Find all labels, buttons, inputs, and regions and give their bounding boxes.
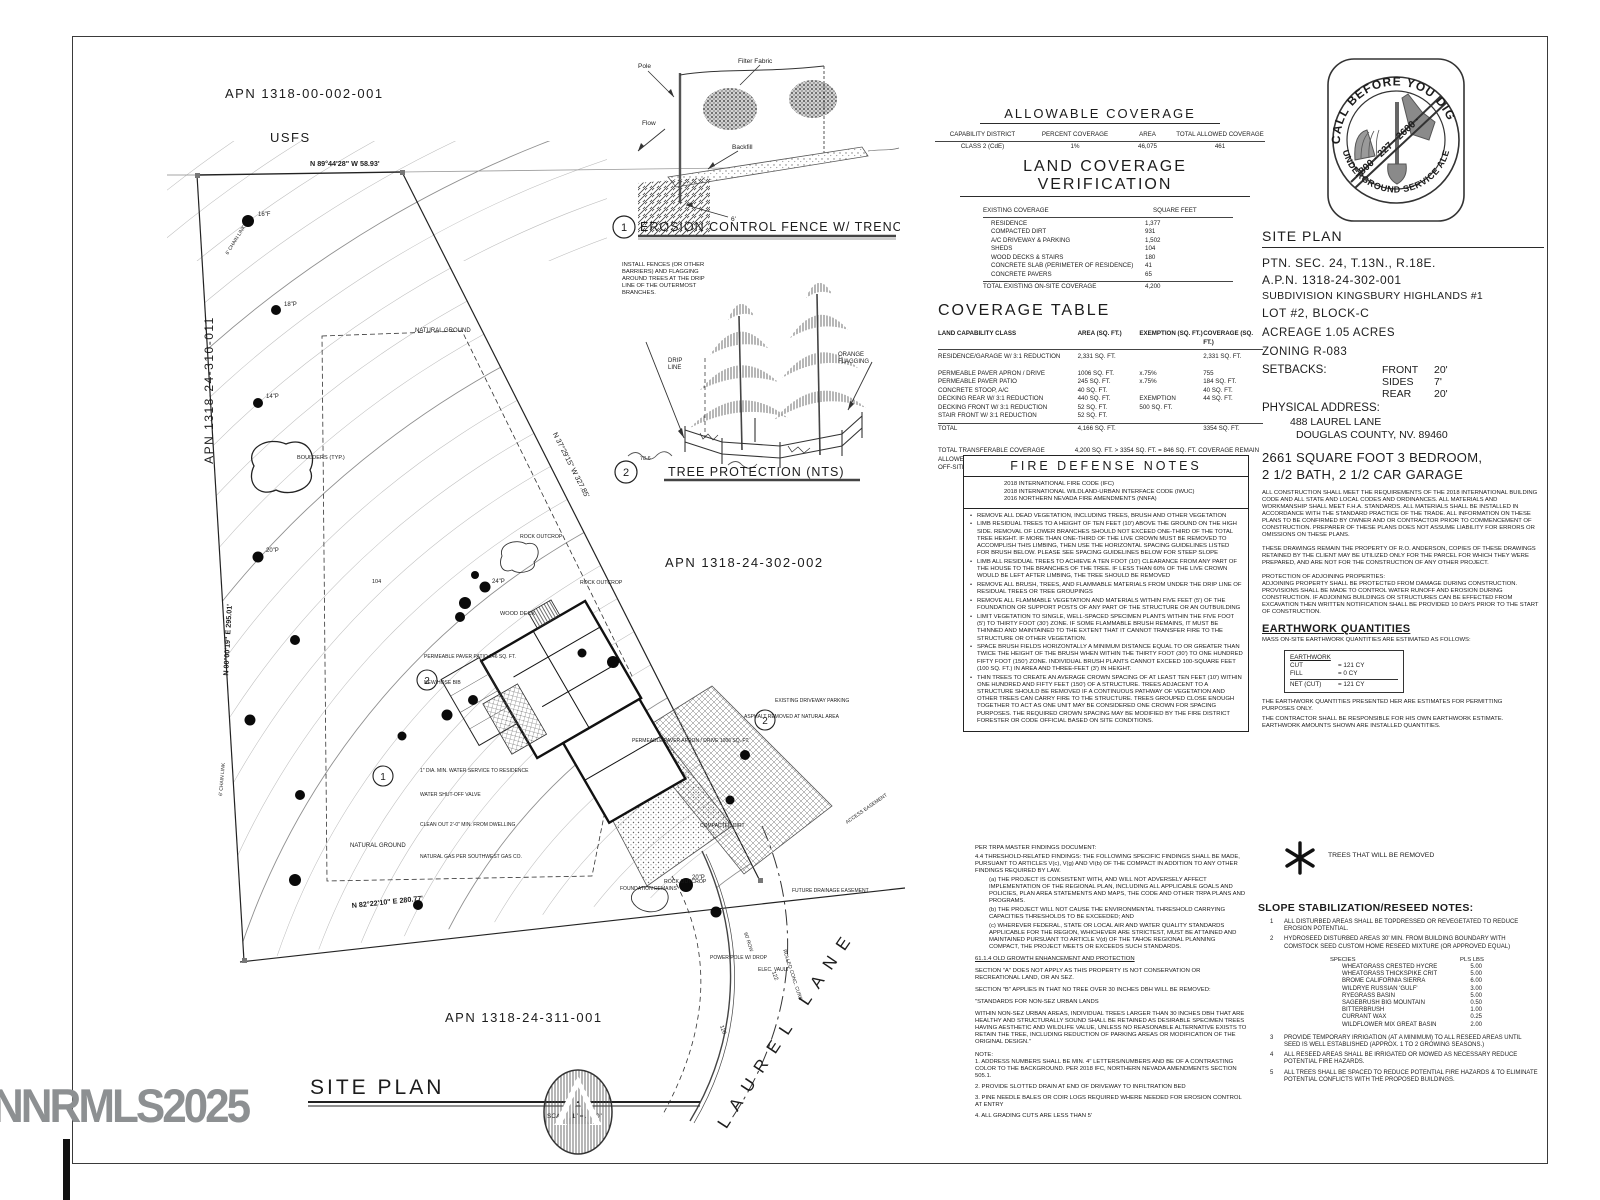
land-row-value: 1,377 (1145, 220, 1160, 229)
coverage-row-class: DECKING FRONT W/ 3:1 REDUCTION (938, 404, 1078, 413)
scanned-site-plan-sheet: { "watermark": "NNRMLS2025", "site": { "… (0, 0, 1600, 1200)
usfs-label: USFS (270, 130, 311, 145)
coverage-table: COVERAGE TABLE LAND CAPABILITY CLASS ARE… (938, 302, 1263, 473)
scan-edge-artifact (63, 1139, 70, 1200)
drip-line-label: DRIP LINE (668, 358, 694, 371)
coverage-row-area: 52 SQ. FT. (1078, 404, 1140, 413)
land-row-label: CONCRETE PAVERS (991, 271, 1145, 280)
filter-fabric-blob (789, 80, 837, 118)
backfill-label: Backfill (732, 144, 753, 151)
species-lbs: 5.00 (1460, 971, 1482, 978)
adjoining-para: ADJOINING PROPERTY SHALL BE PROTECTED FR… (1262, 581, 1540, 616)
pole-label: Pole (638, 63, 651, 70)
building-desc-2: 2 1/2 BATH, 2 1/2 CAR GARAGE (1262, 467, 1546, 482)
allowable-coverage-title: ALLOWABLE COVERAGE (980, 106, 1220, 124)
total-area: 4,166 SQ. FT. (1078, 425, 1204, 434)
title-block-column: SITE PLAN PTN. SEC. 24, T.13N., R.18E. A… (1262, 228, 1546, 730)
rock-outcrop-label: ROCK OUTCROP (580, 580, 623, 586)
mls-watermark: NNRMLS2025 (0, 1080, 248, 1134)
fire-defense-bullet: SPACE BRUSH FIELDS HORIZONTALLY A MINIMU… (970, 644, 1243, 673)
coverage-row-class: PERMEABLE PAVER PATIO (938, 378, 1078, 387)
coverage-row-exemption: EXEMPTION (1139, 395, 1203, 404)
coverage-row-coverage: 755 (1203, 370, 1263, 379)
land-row-value: 180 (1145, 254, 1155, 263)
species-name: WHEATGRASS THICKSPIKE CRIT (1342, 971, 1460, 978)
adjoining-heading: PROTECTION OF ADJOINING PROPERTIES: (1262, 574, 1540, 581)
access-easement-label: ACCESS EASEMENT (845, 792, 889, 825)
svg-text:EROSION CONTROL FENCE W/ TRENC: EROSION CONTROL FENCE W/ TRENCH (640, 220, 900, 234)
removed-tree-symbol (1282, 840, 1318, 876)
species-lbs: 5.00 (1460, 993, 1482, 1000)
apn-label-north: APN 1318-00-002-001 (225, 86, 384, 101)
cell: 46,075 (1120, 143, 1175, 152)
earthwork-title: EARTHWORK QUANTITIES (1262, 623, 1546, 635)
setback-front-value: 20' (1434, 364, 1448, 376)
sheet-title: SITE PLAN (310, 1076, 444, 1099)
fire-code-ref: 2018 INTERNATIONAL WILDLAND-URBAN INTERF… (1004, 489, 1248, 497)
fire-defense-bullet: LIMIT VEGETATION TO SINGLE, WELL-SPACED … (970, 614, 1243, 643)
fire-defense-bullet: LIMB ALL RESIDUAL TREES TO ACHIEVE A TEN… (970, 559, 1243, 581)
col-header: EXEMPTION (SQ. FT.) (1139, 330, 1203, 347)
zoning-line: ZONING R-083 (1262, 346, 1546, 358)
species-name: WHEATGRASS CRESTED HYCRE (1342, 964, 1460, 971)
species-header: SPECIES (1330, 957, 1460, 964)
drainage-easement-label: FUTURE DRAINAGE EASEMENT (792, 888, 869, 894)
chain-link-label: 6' CHAIN LINK (218, 762, 227, 796)
cell: 461 (1175, 143, 1265, 152)
species-lbs: 1.00 (1460, 1007, 1482, 1014)
paver-patio-label: PERMEABLE PAVER PATIO 246 SQ. FT. (424, 654, 516, 660)
setback-sides: SIDES (1382, 376, 1434, 388)
col-header: AREA (SQ. FT.) (1078, 330, 1140, 347)
earthwork-note-1: THE EARTHWORK QUANTITIES PRESENTED HER A… (1262, 699, 1522, 713)
reseed-note-3: PROVIDE TEMPORARY IRRIGATION (AT A MINIM… (1284, 1035, 1538, 1049)
wood-deck-label: WOOD DECK (500, 611, 535, 617)
setback-rear-value: 20' (1434, 388, 1448, 400)
col-header: LAND CAPABILITY CLASS (938, 330, 1078, 347)
boulders-label: BOULDERS (TYP.) (297, 455, 345, 461)
acreage-line: ACREAGE 1.05 ACRES (1262, 327, 1546, 339)
land-coverage-title: LAND COVERAGE VERIFICATION (960, 158, 1250, 197)
flow-label: Flow (642, 120, 656, 127)
cut-label: CUT (1290, 662, 1338, 670)
reseed-note-5: ALL TREES SHALL BE SPACED TO REDUCE POTE… (1284, 1070, 1538, 1084)
earthwork-box-header: EARTHWORK (1290, 654, 1398, 662)
address-line-2: DOUGLAS COUNTY, NV. 89460 (1262, 429, 1546, 441)
total-value: 4,200 (1145, 283, 1225, 292)
coverage-row-coverage (1203, 412, 1263, 421)
compacted-dirt-label: COMPACTED DIRT (700, 823, 745, 829)
erosion-fence-detail: Pole Filter Fabric Flow Backfill 6' 1 ER… (610, 55, 900, 245)
curb-label: ROLLED CONC. CURB (781, 949, 803, 1002)
coverage-row-coverage (1203, 404, 1263, 413)
coverage-row-class: RESIDENCE/GARAGE W/ 3:1 REDUCTION (938, 353, 1078, 362)
species-lbs: 6.00 (1460, 978, 1482, 985)
coverage-row-coverage: 2,331 SQ. FT. (1203, 353, 1263, 362)
paver-drive-label: PERMEABLE PAVER APRON / DRIVE 1006 SQ. F… (632, 738, 749, 744)
general-notes-para-1: ALL CONSTRUCTION SHALL MEET THE REQUIREM… (1262, 490, 1540, 539)
fire-defense-bullet: LIMB RESIDUAL TREES TO A HEIGHT OF TEN F… (970, 521, 1243, 557)
existing-drive-label: EXISTING DRIVEWAY PARKING (775, 698, 849, 704)
coverage-row-area: 245 SQ. FT. (1078, 378, 1140, 387)
land-row-label: RESIDENCE (991, 220, 1145, 229)
fill-label: FILL (1290, 670, 1338, 678)
setbacks-label: SETBACKS: (1262, 364, 1382, 400)
earthwork-note-2: THE CONTRACTOR SHALL BE RESPONSIBLE FOR … (1262, 716, 1522, 730)
tree-tag: 18"P (284, 302, 297, 308)
trpa-44: 4.4 THRESHOLD-RELATED FINDINGS: THE FOLL… (975, 854, 1247, 875)
right-header: SITE PLAN (1262, 228, 1544, 248)
subdivision-line: SUBDIVISION KINGSBURY HIGHLANDS #1 (1262, 290, 1546, 302)
apn-line: A.P.N. 1318-24-302-001 (1262, 273, 1546, 287)
col-header: CAPABILITY DISTRICT (935, 131, 1030, 140)
reseed-note-1: ALL DISTURBED AREAS SHALL BE TOPDRESSED … (1284, 919, 1538, 933)
fill-value: = 0 CY (1338, 670, 1357, 678)
species-table: SPECIES PLS LBS WHEATGRASS CRESTED HYCRE… (1330, 957, 1505, 1029)
coverage-row-class: DECKING REAR W/ 3:1 REDUCTION (938, 395, 1078, 404)
apn-label-center: APN 1318-24-302-002 (665, 555, 824, 570)
sheet-title-block: SITE PLAN SCALE: 1" = 20'-0" (308, 1070, 700, 1154)
natural-ground-label: NATURAL GROUND (350, 843, 406, 849)
contour-label: 104 (372, 579, 381, 585)
old-growth-heading: 61.1.4 OLD GROWTH ENHANCEMENT AND PROTEC… (975, 956, 1247, 963)
coverage-row-exemption: x.75% (1139, 370, 1203, 379)
species-name: WILDRYE RUSSIAN 'GULF' (1342, 986, 1460, 993)
lot-line: LOT #2, BLOCK-C (1262, 306, 1546, 320)
total-coverage: 3354 SQ. FT. (1203, 425, 1263, 434)
section-a: SECTION "A" DOES NOT APPLY AS THIS PROPE… (975, 968, 1247, 982)
land-row-value: 41 (1145, 262, 1152, 271)
tree-tag: 16"F (258, 212, 271, 218)
coverage-row-class: PERMEABLE PAVER APRON / DRIVE (938, 370, 1078, 379)
item-number: 2 (1270, 936, 1284, 950)
fire-defense-bullet: REMOVE ALL BRUSH, TREES, AND FLAMMABLE M… (970, 582, 1243, 596)
fire-code-ref: 2016 NORTHERN NEVADA FIRE AMENDMENTS (NN… (1004, 496, 1248, 504)
cut-value: = 121 CY (1338, 662, 1364, 670)
foundation-label: FOUNDATION REMAINS (620, 886, 678, 892)
fire-defense-title: FIRE DEFENSE NOTES (964, 456, 1248, 477)
species-lbs: 3.00 (1460, 986, 1482, 993)
cell: CLASS 2 (CdE) (935, 143, 1030, 152)
net-label: NET (CUT) (1290, 681, 1338, 689)
item-number: 1 (1270, 919, 1284, 933)
chain-link-label: 6' CHAIN LINK (225, 224, 248, 256)
item-number: 5 (1270, 1070, 1284, 1084)
coverage-row-area: 1006 SQ. FT. (1078, 370, 1140, 379)
coverage-row-exemption (1139, 412, 1203, 421)
firm-logo (544, 1070, 612, 1154)
tree-tag: 20"P (266, 548, 279, 554)
setback-rear: REAR (1382, 388, 1434, 400)
note-4: 4. ALL GRADING CUTS ARE LESS THAN 5' (975, 1113, 1247, 1120)
reseed-notes: SLOPE STABILIZATION/RESEED NOTES: 1ALL D… (1258, 902, 1550, 1087)
total-label: TOTAL EXISTING ON-SITE COVERAGE (983, 283, 1145, 292)
physical-address-label: PHYSICAL ADDRESS: (1262, 402, 1546, 414)
col-header: SQUARE FEET (1153, 207, 1233, 216)
col-header: TOTAL ALLOWED COVERAGE (1175, 131, 1265, 140)
trpa-c: (c) WHEREVER FEDERAL, STATE OR LOCAL AIR… (975, 923, 1247, 951)
species-name: BROME CALIFORNIA SIERRA (1342, 978, 1460, 985)
coverage-row-exemption: x.75% (1139, 378, 1203, 387)
land-coverage-table: LAND COVERAGE VERIFICATION EXISTING COVE… (955, 158, 1255, 292)
note-3: 3. PINE NEEDLE BALES OR COIR LOGS REQUIR… (975, 1095, 1247, 1109)
species-name: BITTERBRUSH (1342, 1007, 1460, 1014)
asphalt-label: ASPHALT REMOVED AT NATURAL AREA (744, 714, 840, 720)
species-lbs: 0.50 (1460, 1000, 1482, 1007)
bearing-east: N 37°29'15" W 327.85' (551, 431, 592, 500)
call-before-you-dig-logo: CALL BEFORE YOU DIG UNDERGROUND SERVICE … (1325, 56, 1467, 224)
protection-fence (685, 412, 862, 468)
ownership-para: THESE DRAWINGS REMAIN THE PROPERTY OF R.… (1262, 546, 1540, 567)
coverage-row-class: STAIR FRONT W/ 3:1 REDUCTION (938, 412, 1078, 421)
note-heading: NOTE: (975, 1052, 1247, 1059)
item-number: 3 (1270, 1035, 1284, 1049)
land-row-value: 104 (1145, 245, 1155, 254)
removed-trees-legend-label: TREES THAT WILL BE REMOVED (1328, 852, 1434, 859)
species-lbs: 2.00 (1460, 1022, 1482, 1029)
land-row-label: COMPACTED DIRT (991, 228, 1145, 237)
filter-fabric-blob (703, 88, 757, 130)
ptn-line: PTN. SEC. 24, T.13N., R.18E. (1262, 256, 1546, 270)
gas-label: NATURAL GAS PER SOUTHWEST GAS CO. (420, 854, 522, 860)
fire-defense-bullet: REMOVE ALL DEAD VEGETATION, INCLUDING TR… (970, 513, 1243, 520)
cleanout-label: CLEAN OUT 2'-0" MIN. FROM DWELLING (420, 822, 516, 828)
species-name: CURRANT WAX (1342, 1014, 1460, 1021)
svg-text:1: 1 (621, 222, 627, 234)
total-label: TOTAL (938, 425, 1078, 434)
coverage-row-area: 440 SQ. FT. (1078, 395, 1140, 404)
tree-protection-note: INSTALL FENCES (OR OTHER BARRIERS) AND F… (622, 262, 710, 297)
trpa-findings: PER TRPA MASTER FINDINGS DOCUMENT: 4.4 T… (975, 845, 1247, 1120)
land-row-label: CONCRETE SLAB (PERIMETER OF RESIDENCE) (991, 262, 1145, 271)
coverage-row-coverage: 40 SQ. FT. (1203, 387, 1263, 396)
water-shutoff-label: WATER SHUT-OFF VALVE (420, 792, 481, 798)
fire-defense-bullet: THIN TREES TO CREATE AN AVERAGE CROWN SP… (970, 675, 1243, 725)
coverage-row-class: CONCRETE STOOP, A/C (938, 387, 1078, 396)
natural-ground-label: NATURAL GROUND (415, 328, 471, 334)
trpa-b: (b) THE PROJECT WILL NOT CAUSE THE ENVIR… (975, 907, 1247, 921)
species-lbs: 0.25 (1460, 1014, 1482, 1021)
item-number: 4 (1270, 1052, 1284, 1066)
land-row-label: A/C DRIVEWAY & PARKING (991, 237, 1145, 246)
detail-2-title: 2 TREE PROTECTION (NTS) (615, 461, 860, 483)
net-value: = 121 CY (1338, 681, 1364, 689)
standards-text: WITHIN NON-SEZ URBAN AREAS, INDIVIDUAL T… (975, 1011, 1247, 1046)
svg-text:2: 2 (623, 467, 629, 479)
rock-outcrop-label: ROCK OUTCROP (520, 534, 563, 540)
apn-label-south: APN 1318-24-311-001 (445, 1010, 603, 1025)
land-row-value: 1,502 (1145, 237, 1160, 246)
coverage-row-exemption (1139, 387, 1203, 396)
fire-defense-notes-box: FIRE DEFENSE NOTES 2018 INTERNATIONAL FI… (963, 455, 1249, 732)
building-desc-1: 2661 SQUARE FOOT 3 BEDROOM, (1262, 450, 1546, 465)
note-2: 2. PROVIDE SLOTTED DRAIN AT END OF DRIVE… (975, 1084, 1247, 1091)
trpa-a: (a) THE PROJECT IS CONSISTENT WITH, AND … (975, 877, 1247, 905)
tree-tag: 14"P (266, 394, 279, 400)
trpa-intro: PER TRPA MASTER FINDINGS DOCUMENT: (975, 845, 1247, 852)
species-lbs: 5.00 (1460, 964, 1482, 971)
tree-tag: 24"P (492, 579, 505, 585)
west-boundary-line (197, 175, 244, 961)
rock-outcrop-label: ROCK OUTCROP (664, 879, 707, 885)
land-row-value: 65 (1145, 271, 1152, 280)
section-b: SECTION "B" APPLIES IN THAT NO TREE OVER… (975, 987, 1247, 994)
fire-code-ref: 2018 INTERNATIONAL FIRE CODE (IFC) (1004, 481, 1248, 489)
filter-fabric-label: Filter Fabric (738, 58, 773, 65)
species-name: RYEGRASS BASIN (1342, 993, 1460, 1000)
col-header: COVERAGE (SQ. FT.) (1203, 330, 1263, 347)
svg-text:TREE PROTECTION (NTS): TREE PROTECTION (NTS) (668, 465, 845, 479)
coverage-row-coverage: 184 SQ. FT. (1203, 378, 1263, 387)
address-line-1: 488 LAUREL LANE (1262, 416, 1546, 428)
col-header: AREA (1120, 131, 1175, 140)
setback-sides-value: 7' (1434, 376, 1442, 388)
coverage-row-area: 52 SQ. FT. (1078, 412, 1140, 421)
coverage-table-title: COVERAGE TABLE (938, 302, 1263, 320)
species-name: SAGEBRUSH BIG MOUNTAIN (1342, 1000, 1460, 1007)
pine-tree (774, 283, 866, 455)
bearing-south: N 82°22'10" E 280.77' (351, 894, 423, 910)
detail-1-title: 1 EROSION CONTROL FENCE W/ TRENCH (613, 216, 900, 239)
apn-label-west: APN 1318-24-310-011 (202, 316, 216, 464)
bearing-north: N 89°44'28" W 58.93' (310, 159, 380, 168)
earthwork-sub: MASS ON-SITE EARTHWORK QUANTITIES ARE ES… (1262, 637, 1546, 644)
land-row-label: WOOD DECKS & STAIRS (991, 254, 1145, 263)
cell: 1% (1030, 143, 1120, 152)
allowable-coverage-table: ALLOWABLE COVERAGE CAPABILITY DISTRICT P… (935, 106, 1265, 151)
earthwork-box: EARTHWORK CUT= 121 CY FILL= 0 CY NET (CU… (1284, 650, 1404, 693)
svg-text:1: 1 (380, 772, 386, 783)
north-boundary-line (197, 172, 402, 175)
reseed-note-2: HYDROSEED DISTURBED AREAS 30' MIN. FROM … (1284, 936, 1538, 950)
species-name: WILDFLOWER MIX GREAT BASIN (1342, 1022, 1460, 1029)
reseed-title: SLOPE STABILIZATION/RESEED NOTES: (1258, 902, 1550, 914)
note-1: 1. ADDRESS NUMBERS SHALL BE MIN. 4" LETT… (975, 1059, 1247, 1080)
power-pole-label: POWER POLE W/ DROP (710, 955, 768, 961)
fire-defense-bullet: REMOVE ALL FLAMMABLE VEGETATION AND MATE… (970, 598, 1243, 612)
row-label: 60' ROW (742, 932, 754, 953)
water-service-label: 1" DIA. MIN. WATER SERVICE TO RESIDENCE (420, 768, 529, 774)
reseed-note-4: ALL RESEED AREAS SHALL BE IRRIGATED OR M… (1284, 1052, 1538, 1066)
coverage-row-coverage: 44 SQ. FT. (1203, 395, 1263, 404)
coverage-row-area: 40 SQ. FT. (1078, 387, 1140, 396)
coverage-row-area: 2,331 SQ. FT. (1078, 353, 1140, 362)
hose-bib-label: NEW HOSE BIB (424, 680, 461, 686)
pls-lbs-header: PLS LBS (1460, 957, 1484, 964)
col-header: EXISTING COVERAGE (983, 207, 1153, 216)
coverage-row-exemption (1139, 353, 1203, 362)
boulders-outline (251, 441, 312, 492)
standards-quote: "STANDARDS FOR NON-SEZ URBAN LANDS (975, 999, 1247, 1006)
orange-flagging-label: ORANGE FLAGGING (838, 352, 888, 366)
col-header: PERCENT COVERAGE (1030, 131, 1120, 140)
coverage-row-exemption: 500 SQ. FT. (1139, 404, 1203, 413)
setback-front: FRONT (1382, 364, 1434, 376)
road-curb-line (690, 851, 731, 1121)
land-row-label: SHEDS (991, 245, 1145, 254)
land-row-value: 931 (1145, 228, 1155, 237)
